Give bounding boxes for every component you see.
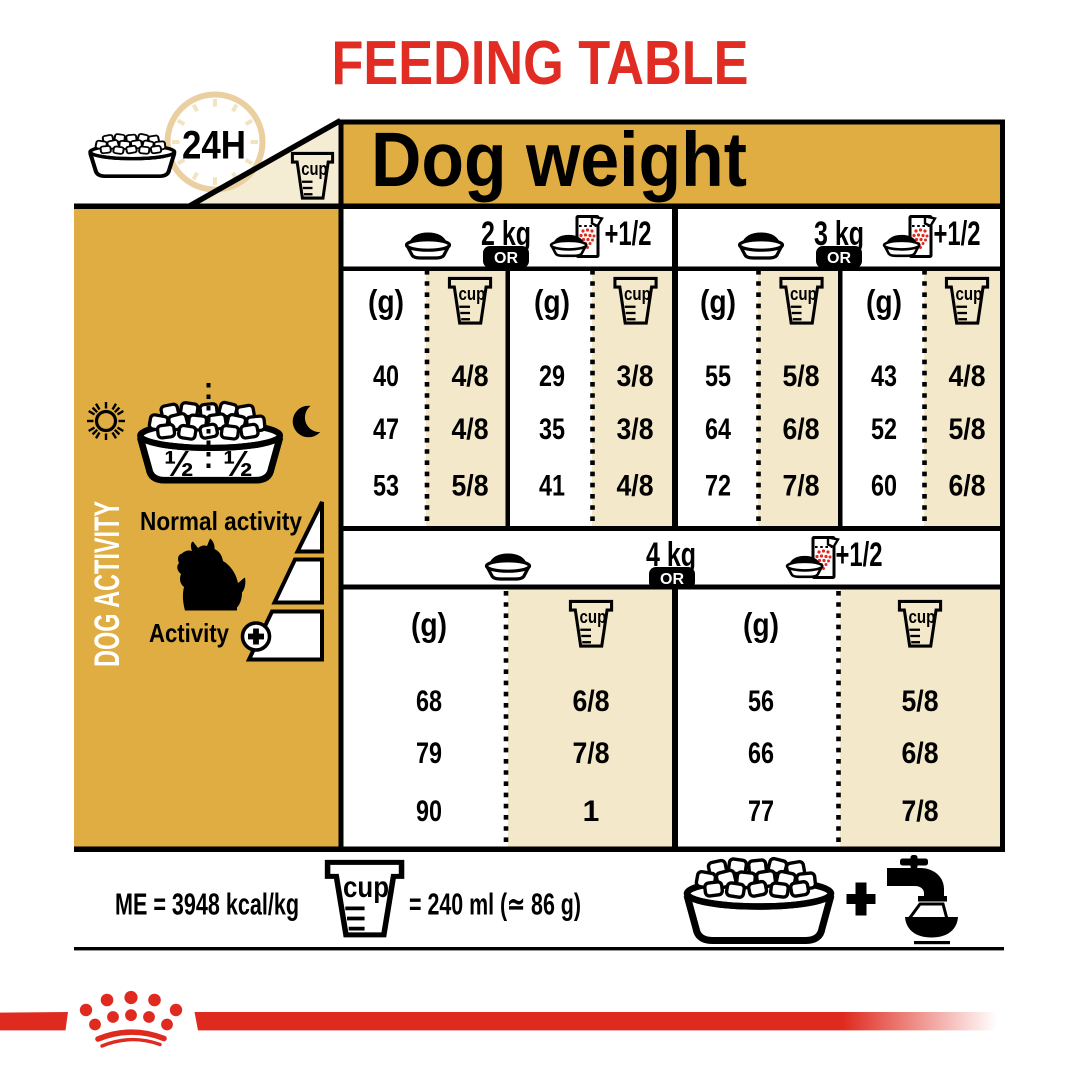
svg-text:DOG ACTIVITY: DOG ACTIVITY: [88, 501, 127, 667]
svg-text:41: 41: [539, 470, 565, 503]
svg-text:(g): (g): [866, 283, 902, 320]
svg-text:7/8: 7/8: [902, 795, 939, 828]
svg-text:+1/2: +1/2: [836, 536, 883, 574]
svg-text:Activity: Activity: [149, 618, 229, 648]
svg-text:+1/2: +1/2: [605, 215, 652, 253]
svg-text:+1/2: +1/2: [934, 215, 981, 253]
svg-text:90: 90: [416, 795, 442, 828]
svg-text:(g): (g): [368, 283, 404, 320]
svg-text:56: 56: [748, 685, 774, 718]
svg-text:77: 77: [748, 795, 774, 828]
svg-text:= 240 ml (≃ 86 g): = 240 ml (≃ 86 g): [409, 887, 581, 922]
svg-text:ME = 3948 kcal/kg: ME = 3948 kcal/kg: [115, 887, 299, 922]
svg-text:40: 40: [373, 360, 399, 393]
svg-text:4/8: 4/8: [617, 470, 654, 503]
svg-text:68: 68: [416, 685, 442, 718]
svg-text:½: ½: [223, 443, 253, 484]
svg-text:6/8: 6/8: [783, 413, 820, 446]
svg-text:72: 72: [705, 470, 731, 503]
svg-text:29: 29: [539, 360, 565, 393]
svg-text:OR: OR: [827, 250, 851, 267]
svg-text:64: 64: [705, 413, 731, 446]
svg-text:53: 53: [373, 470, 399, 503]
svg-text:6/8: 6/8: [949, 470, 986, 503]
svg-text:5/8: 5/8: [949, 413, 986, 446]
svg-text:35: 35: [539, 413, 565, 446]
svg-text:(g): (g): [534, 283, 570, 320]
svg-text:(g): (g): [411, 606, 447, 643]
svg-text:Dog weight: Dog weight: [371, 117, 747, 203]
svg-text:52: 52: [871, 413, 897, 446]
svg-text:60: 60: [871, 470, 897, 503]
svg-text:3/8: 3/8: [617, 360, 654, 393]
svg-text:OR: OR: [494, 250, 518, 267]
svg-text:(g): (g): [700, 283, 736, 320]
svg-text:7/8: 7/8: [783, 470, 820, 503]
svg-text:4/8: 4/8: [452, 413, 489, 446]
svg-text:3/8: 3/8: [617, 413, 654, 446]
svg-text:(g): (g): [743, 606, 779, 643]
svg-text:66: 66: [748, 737, 774, 770]
svg-text:1: 1: [583, 795, 600, 828]
svg-text:Normal activity: Normal activity: [140, 506, 302, 536]
svg-text:5/8: 5/8: [902, 685, 939, 718]
svg-text:FEEDING TABLE: FEEDING TABLE: [332, 29, 749, 98]
svg-text:½: ½: [164, 443, 194, 484]
svg-text:43: 43: [871, 360, 897, 393]
svg-text:OR: OR: [660, 571, 684, 588]
svg-text:6/8: 6/8: [902, 737, 939, 770]
svg-text:4/8: 4/8: [949, 360, 986, 393]
svg-text:4/8: 4/8: [452, 360, 489, 393]
svg-text:24H: 24H: [182, 124, 246, 168]
svg-text:7/8: 7/8: [573, 737, 610, 770]
svg-text:5/8: 5/8: [783, 360, 820, 393]
svg-text:55: 55: [705, 360, 731, 393]
svg-text:5/8: 5/8: [452, 470, 489, 503]
svg-text:6/8: 6/8: [573, 685, 610, 718]
svg-text:47: 47: [373, 413, 399, 446]
svg-text:cup: cup: [343, 871, 389, 904]
svg-text:79: 79: [416, 737, 442, 770]
